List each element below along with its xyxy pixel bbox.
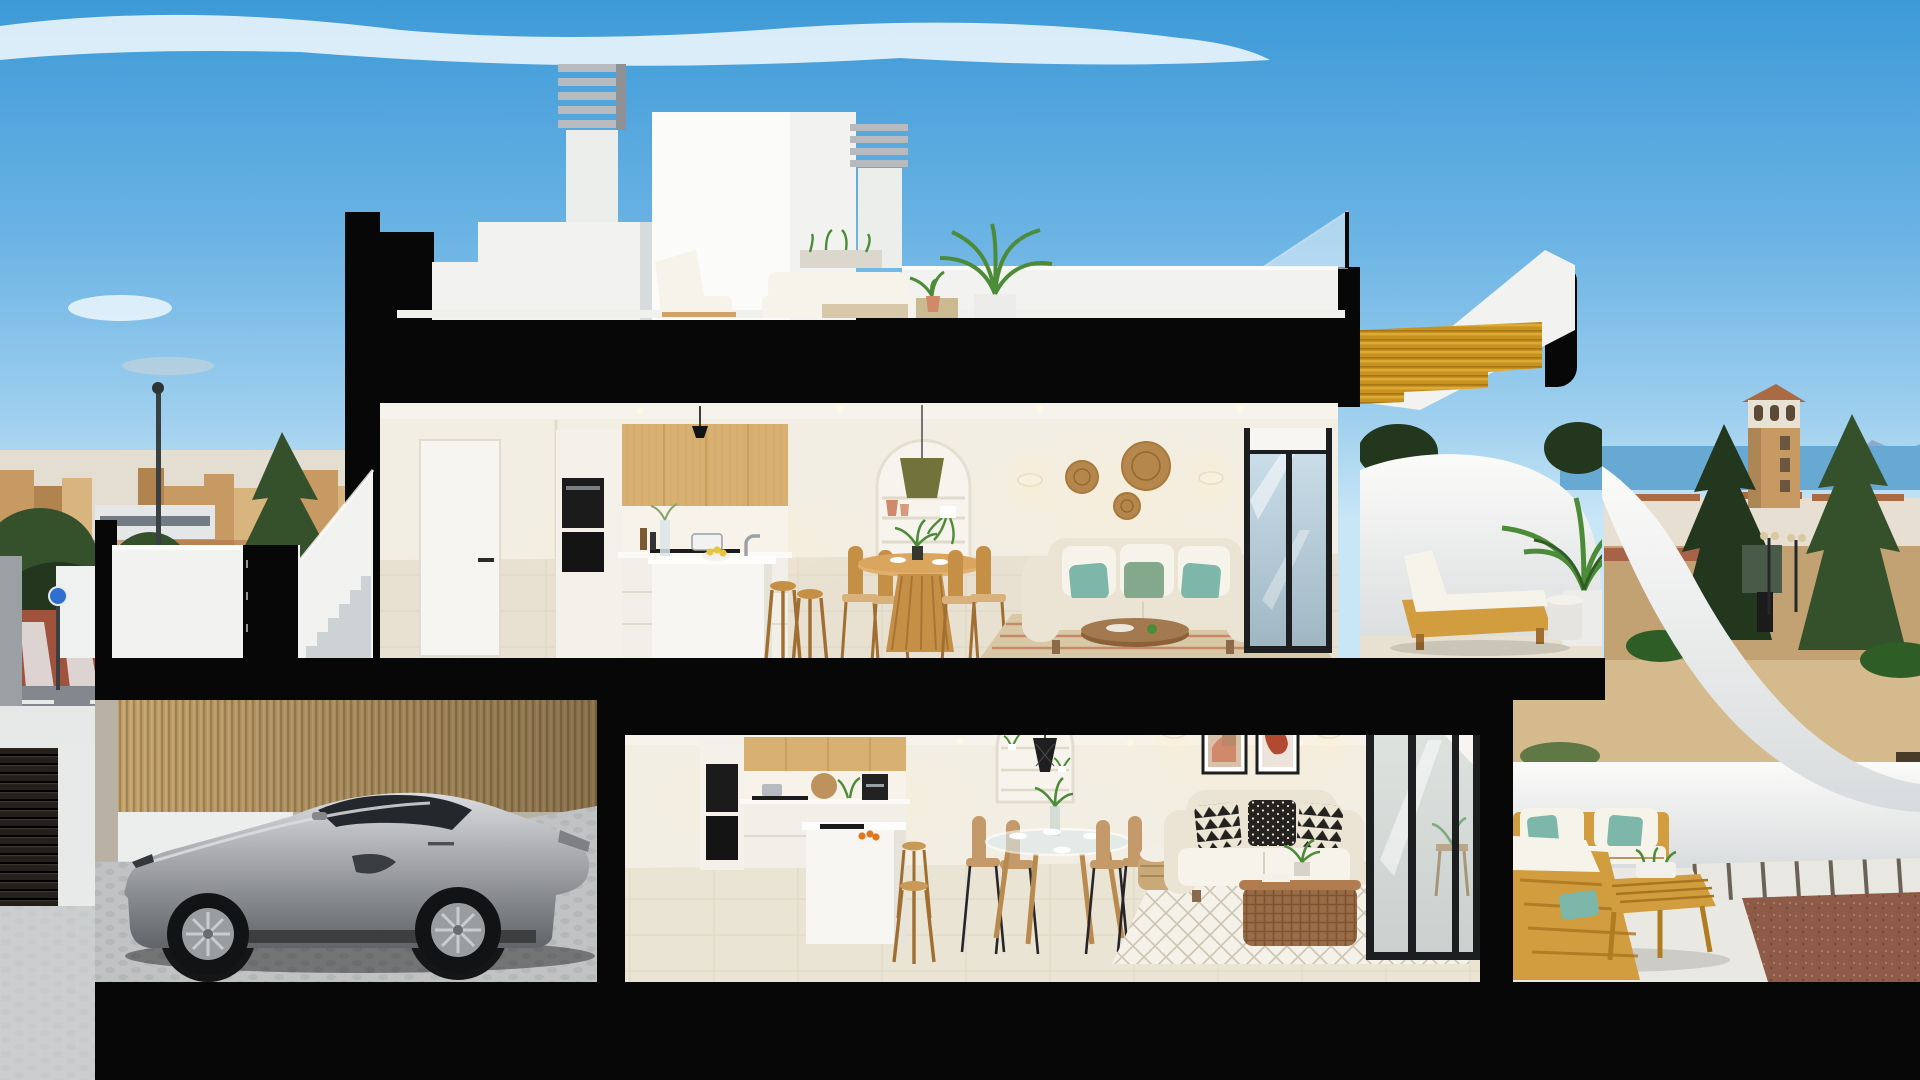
- garage: [95, 700, 597, 982]
- terrace-side-table: [1546, 595, 1584, 640]
- dark-pillow: [1248, 800, 1296, 846]
- pillar: [1757, 592, 1773, 632]
- patterned-pillow: [1194, 802, 1242, 850]
- cut-garage-divider: [595, 705, 625, 985]
- sign-pole: [56, 604, 60, 690]
- street-lamp-head: [152, 382, 164, 394]
- kitchen-island-lower: [802, 822, 906, 944]
- lower-cabinets-wood: [744, 737, 906, 771]
- bottle: [650, 532, 656, 550]
- left-wall-base: [0, 706, 95, 750]
- rear-wheel: [415, 887, 501, 973]
- pot: [762, 784, 782, 796]
- villa-cross-section-render: [0, 0, 1920, 1080]
- terracotta-vase: [886, 500, 898, 516]
- cooktop-lower: [752, 796, 808, 800]
- entry-gate: [243, 545, 298, 658]
- green-pillow: [1124, 562, 1164, 600]
- roller-blind-box: [1244, 428, 1332, 450]
- cut-lower-ceiling: [625, 705, 1480, 735]
- upper-floor: [380, 403, 1338, 666]
- roof-planter: [800, 250, 882, 268]
- oven-upper: [562, 478, 604, 528]
- teal-pillow: [1558, 889, 1599, 920]
- ground-floor: [625, 698, 1480, 982]
- cut-right-wall-lower: [1480, 705, 1513, 985]
- upper-ceiling: [380, 403, 1338, 419]
- upper-coffee-table: [1081, 618, 1189, 647]
- terrace-bg-tree2: [1544, 422, 1612, 474]
- patterned-pillow: [1296, 802, 1344, 850]
- hedge-slab: [1742, 545, 1782, 593]
- cut-roof-step-small: [380, 232, 434, 266]
- chimney-1-shaft: [566, 130, 618, 226]
- cut-roof-band: [380, 318, 1338, 405]
- door-handle: [428, 842, 454, 845]
- table-planter: [1636, 862, 1676, 878]
- oven-lower: [562, 532, 604, 572]
- small-white-wall: [56, 566, 96, 658]
- corrugated-edge: [0, 556, 22, 706]
- blue-traffic-sign: [49, 587, 67, 605]
- cut-right-block: [1338, 267, 1360, 407]
- oil-bottle: [640, 528, 647, 550]
- lower-sliding-door: [1366, 705, 1480, 960]
- render-canvas: [0, 0, 1920, 1080]
- neighbor-garage-door: [0, 748, 58, 906]
- roof-coffee-table: [822, 304, 908, 318]
- left-wall-pier: [58, 744, 95, 906]
- teal-pillow: [1181, 562, 1222, 601]
- front-wheel: [167, 893, 249, 975]
- cloud-puff: [68, 295, 172, 321]
- upper-sliding-door: [1244, 428, 1332, 653]
- rattan-tray: [811, 773, 837, 799]
- roof-volume-left: [478, 222, 652, 320]
- red-gravel: [1742, 892, 1920, 982]
- teal-pillow: [1607, 815, 1644, 850]
- oven-lower-floor: [706, 764, 738, 812]
- book: [1262, 874, 1290, 882]
- left-exterior-strip: [0, 706, 95, 1080]
- railing-post: [1345, 212, 1349, 268]
- vase: [660, 520, 670, 556]
- mirror: [312, 812, 327, 820]
- cut-ground-band: [95, 982, 1920, 1080]
- entry-door: [420, 440, 500, 656]
- lower-terrace: [1490, 700, 1920, 982]
- island-sink: [820, 824, 864, 829]
- upper-kitchen: [556, 424, 827, 666]
- teal-pillow: [1069, 562, 1110, 601]
- cloud-grey: [122, 357, 214, 375]
- olive-pendant-lamp: [900, 458, 944, 498]
